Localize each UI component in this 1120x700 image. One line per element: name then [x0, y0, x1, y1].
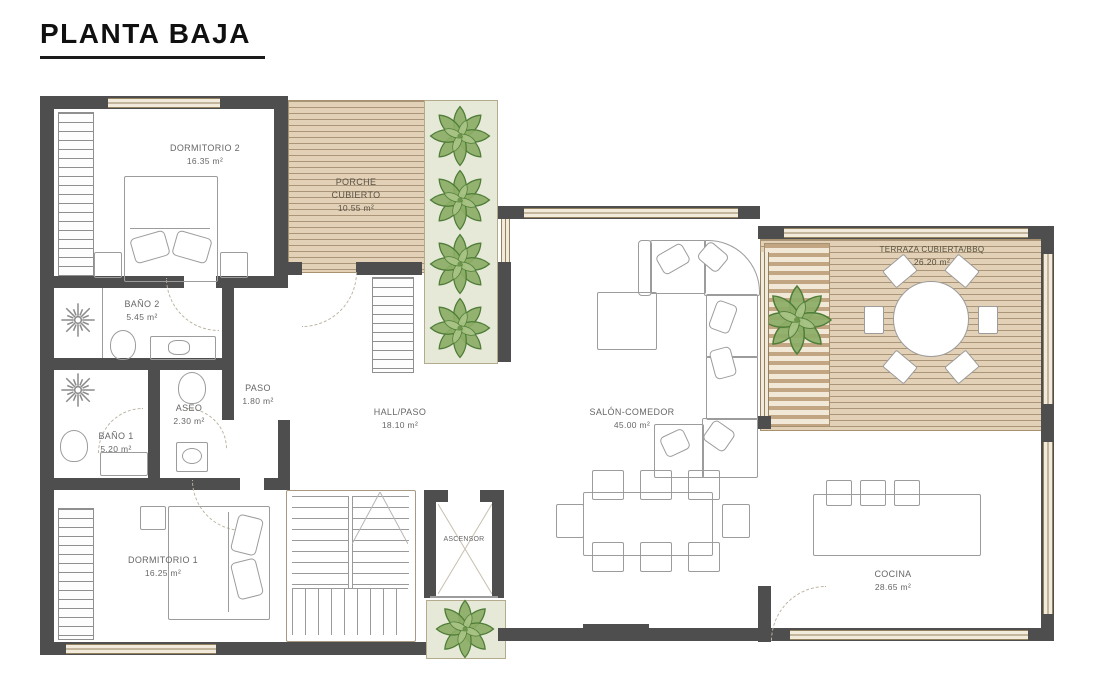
- wall: [288, 262, 302, 275]
- room-area: 18.10 m²: [345, 419, 455, 431]
- room-name: BAÑO 2: [100, 298, 184, 311]
- terrace-chair: [978, 306, 998, 334]
- room-name: PASO: [228, 382, 288, 395]
- kitchen-island: [813, 494, 981, 556]
- wall: [356, 262, 422, 275]
- room-area: 1.80 m²: [228, 395, 288, 407]
- room-label-bano-2: BAÑO 2 5.45 m²: [100, 298, 184, 323]
- stair-flight: [292, 496, 349, 588]
- room-name: DORMITORIO 1: [88, 554, 238, 567]
- room-name: TERRAZA CUBIERTA/BBQ: [832, 244, 1032, 256]
- nightstand: [94, 252, 122, 278]
- window: [524, 208, 738, 218]
- hall-cabinet: [372, 277, 414, 373]
- elevator-wall: [424, 490, 448, 502]
- room-label-aseo: ASEO 2.30 m²: [158, 402, 220, 427]
- plant-icon: [428, 232, 492, 296]
- room-name: SALÓN-COMEDOR: [562, 406, 702, 419]
- page-title: PLANTA BAJA: [40, 18, 265, 59]
- elevator-wall: [480, 490, 504, 502]
- plant-icon: [428, 296, 492, 360]
- stair-flight: [292, 588, 408, 635]
- wardrobe: [58, 112, 94, 276]
- nightstand: [220, 252, 248, 278]
- wall: [40, 96, 54, 655]
- wall: [274, 96, 288, 288]
- shower-icon: [58, 300, 98, 340]
- floor-plan: PLANTA BAJA: [0, 0, 1120, 700]
- sliding-door: [583, 624, 649, 632]
- room-area: 5.20 m²: [80, 443, 152, 455]
- nightstand: [140, 506, 166, 530]
- room-label-paso: PASO 1.80 m²: [228, 382, 288, 407]
- door-arc: [302, 272, 357, 327]
- plant-icon: [432, 598, 498, 660]
- sliding-door: [643, 633, 709, 641]
- room-label-dormitorio-1: DORMITORIO 1 16.25 m²: [88, 554, 238, 579]
- door-arc: [771, 586, 826, 641]
- room-label-hall: HALL/PASO 18.10 m²: [345, 406, 455, 431]
- wall: [498, 262, 511, 362]
- wall: [264, 478, 290, 490]
- room-name: BAÑO 1: [80, 430, 152, 443]
- room-name: PORCHE: [298, 176, 414, 189]
- toilet: [178, 372, 206, 404]
- window: [1043, 442, 1053, 614]
- room-label-dormitorio-2: DORMITORIO 2 16.35 m²: [130, 142, 280, 167]
- terrace-chair: [864, 306, 884, 334]
- room-area: 45.00 m²: [562, 419, 702, 431]
- room-area: 5.45 m²: [100, 311, 184, 323]
- elevator-sill: [430, 596, 498, 598]
- elevator-cross-icon: [438, 504, 492, 594]
- sink-basin: [168, 340, 190, 355]
- plant-icon: [428, 104, 492, 168]
- room-label-ascensor: ASCENSOR: [430, 535, 498, 545]
- room-area: 2.30 m²: [158, 415, 220, 427]
- window: [66, 644, 216, 654]
- room-area: 16.35 m²: [130, 155, 280, 167]
- chair: [722, 504, 750, 538]
- sink-basin: [182, 448, 202, 464]
- room-name: CUBIERTO: [298, 189, 414, 202]
- bed-sheet-line: [130, 228, 210, 229]
- plant-icon: [760, 282, 834, 358]
- room-label-terraza: TERRAZA CUBIERTA/BBQ 26.20 m²: [832, 244, 1032, 268]
- room-area: 28.65 m²: [838, 581, 948, 593]
- toilet: [110, 330, 136, 360]
- plant-icon: [428, 168, 492, 232]
- room-name: ASCENSOR: [430, 535, 498, 545]
- window: [784, 228, 1028, 238]
- window: [760, 252, 769, 416]
- window: [1043, 254, 1053, 404]
- room-name: ASEO: [158, 402, 220, 415]
- room-name: DORMITORIO 2: [130, 142, 280, 155]
- dining-table: [583, 492, 713, 556]
- coffee-table: [597, 292, 657, 350]
- wall: [758, 416, 771, 429]
- room-area: 26.20 m²: [832, 256, 1032, 268]
- room-name: HALL/PASO: [345, 406, 455, 419]
- chair: [556, 504, 584, 538]
- stair-direction-icon: [352, 492, 408, 544]
- terrace-table: [893, 281, 969, 357]
- sink: [100, 452, 148, 476]
- room-label-salon: SALÓN-COMEDOR 45.00 m²: [562, 406, 702, 431]
- bed: [124, 176, 218, 282]
- shower-icon: [58, 370, 98, 410]
- wall: [758, 586, 771, 642]
- room-name: COCINA: [838, 568, 948, 581]
- room-label-cocina: COCINA 28.65 m²: [838, 568, 948, 593]
- room-area: 10.55 m²: [298, 202, 414, 214]
- room-area: 16.25 m²: [88, 567, 238, 579]
- window: [108, 98, 220, 108]
- room-label-porche: PORCHE CUBIERTO 10.55 m²: [298, 176, 414, 214]
- window: [501, 219, 510, 263]
- room-label-bano-1: BAÑO 1 5.20 m²: [80, 430, 152, 455]
